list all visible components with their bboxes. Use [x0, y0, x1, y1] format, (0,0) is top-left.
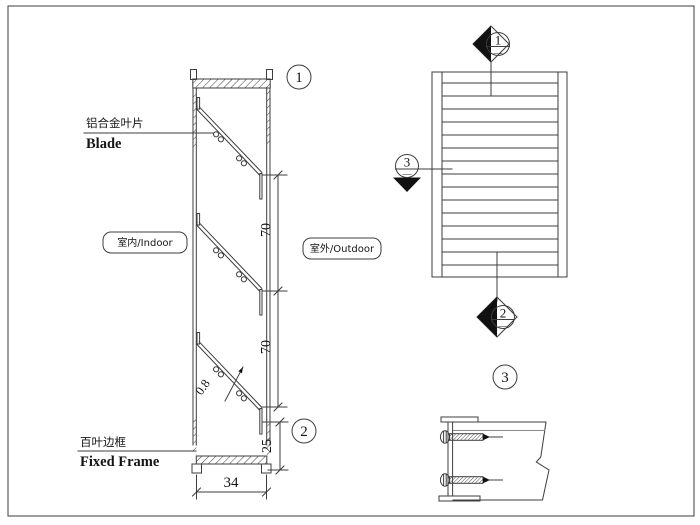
top-channel-right-tab: [267, 70, 273, 80]
frame-label-cn: 百叶边框: [80, 435, 126, 449]
view-direction-triangle: [393, 178, 421, 193]
louver-blade-2: [197, 214, 263, 316]
dim-text-depth: 34: [224, 475, 240, 491]
frame-label-en: Fixed Frame: [80, 454, 160, 470]
dim-text-pitch-upper: 70: [259, 223, 274, 237]
detail-balloon-1: 1: [287, 65, 311, 89]
top-channel-left-tab: [191, 70, 197, 80]
marker-2-sheet: —: [498, 321, 509, 331]
view-direction-triangle: [473, 26, 491, 62]
top-frame-channel: [191, 70, 273, 89]
detail-balloon-2: 2: [292, 419, 316, 443]
louver-blade-1: [197, 98, 263, 200]
dim-text-bottom-height: 25: [260, 439, 275, 453]
dim-text-thickness: 0.8: [193, 377, 213, 398]
section-marker-1: 1 —: [473, 26, 510, 96]
dim-bottom-height: 25: [260, 418, 288, 474]
indoor-tag: 室内/Indoor: [103, 232, 187, 253]
blade-label-en: Blade: [86, 136, 122, 152]
fixed-frame-label: 百叶边框 Fixed Frame: [78, 435, 196, 470]
rail-hatch: [193, 90, 196, 148]
dim-blade-thickness: 0.8: [193, 367, 243, 401]
marker-3-sheet: —: [402, 169, 413, 179]
flange-top: [441, 417, 478, 422]
elevation-view: 1 — 3 — 2 —: [393, 26, 567, 337]
section-view: 70 70 25 34: [78, 65, 381, 499]
screws: [440, 431, 502, 486]
marker-2-number: 2: [500, 306, 507, 321]
screw-1: [440, 431, 502, 443]
bottom-channel-left-foot: [192, 464, 202, 473]
dim-depth: 34: [193, 475, 271, 499]
outdoor-tag: 室外/Outdoor: [303, 238, 381, 259]
louver-drawing: 70 70 25 34: [0, 0, 700, 525]
top-channel-hatched-web: [193, 79, 270, 88]
section-marker-3: 3 —: [393, 155, 452, 193]
dim-pitch-lower: 70: [259, 291, 287, 411]
bottom-frame-channel: [192, 456, 271, 473]
view-direction-triangle: [477, 297, 497, 337]
marker-1-number: 1: [495, 33, 502, 48]
dim-text-pitch-lower: 70: [259, 340, 274, 354]
marker-1-sheet: —: [493, 48, 504, 58]
marker-3-number: 3: [404, 155, 411, 170]
bottom-channel-hatched-web: [196, 456, 266, 464]
dim-pitch-upper: 70: [259, 171, 287, 295]
balloon-1-number: 1: [295, 70, 303, 86]
detail-balloon-3: 3: [493, 365, 517, 389]
rail-hatch: [193, 419, 196, 455]
right-frame-rail: [267, 88, 270, 455]
rail-hatch: [267, 90, 270, 148]
bottom-channel-right-foot: [262, 464, 272, 473]
blade-label-cn: 铝合金叶片: [86, 116, 144, 130]
balloon-3-number: 3: [501, 370, 509, 386]
detail-view: 3: [439, 365, 549, 501]
balloon-2-number: 2: [300, 424, 308, 440]
indoor-tag-text: 室内/Indoor: [117, 236, 173, 249]
screw-2: [440, 474, 502, 486]
left-frame-rail: [193, 88, 196, 455]
louver-slats: [442, 96, 558, 252]
outdoor-tag-text: 室外/Outdoor: [310, 242, 375, 255]
leader-arrow: [238, 367, 243, 373]
